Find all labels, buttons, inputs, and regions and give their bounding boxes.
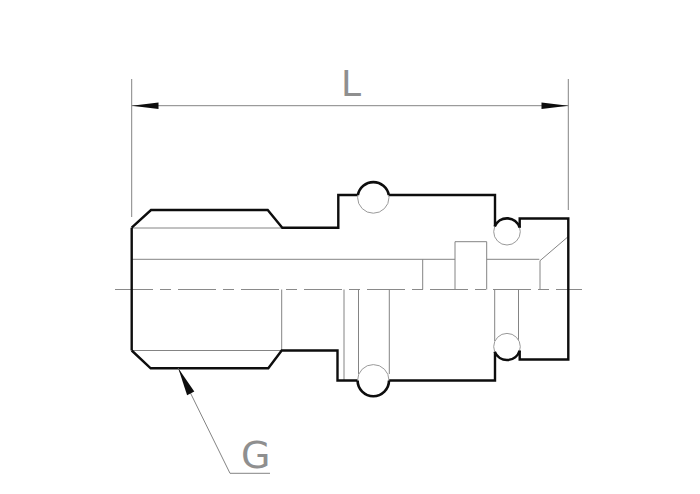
outline-bottom: [132, 351, 495, 381]
outline-top: [132, 195, 495, 228]
drawing-canvas: L: [0, 0, 700, 494]
leader-arrow-icon: [178, 368, 194, 395]
length-dimension-label: L: [341, 63, 361, 104]
thread-callout: G: [178, 368, 270, 477]
dimension-arrow-right-icon: [542, 102, 569, 109]
thread-designation-label: G: [241, 433, 270, 477]
technical-drawing: L: [0, 0, 700, 494]
nut-chamfer-line: [540, 237, 568, 261]
dimension-arrow-left-icon: [132, 102, 159, 109]
port-detail: [455, 242, 487, 290]
